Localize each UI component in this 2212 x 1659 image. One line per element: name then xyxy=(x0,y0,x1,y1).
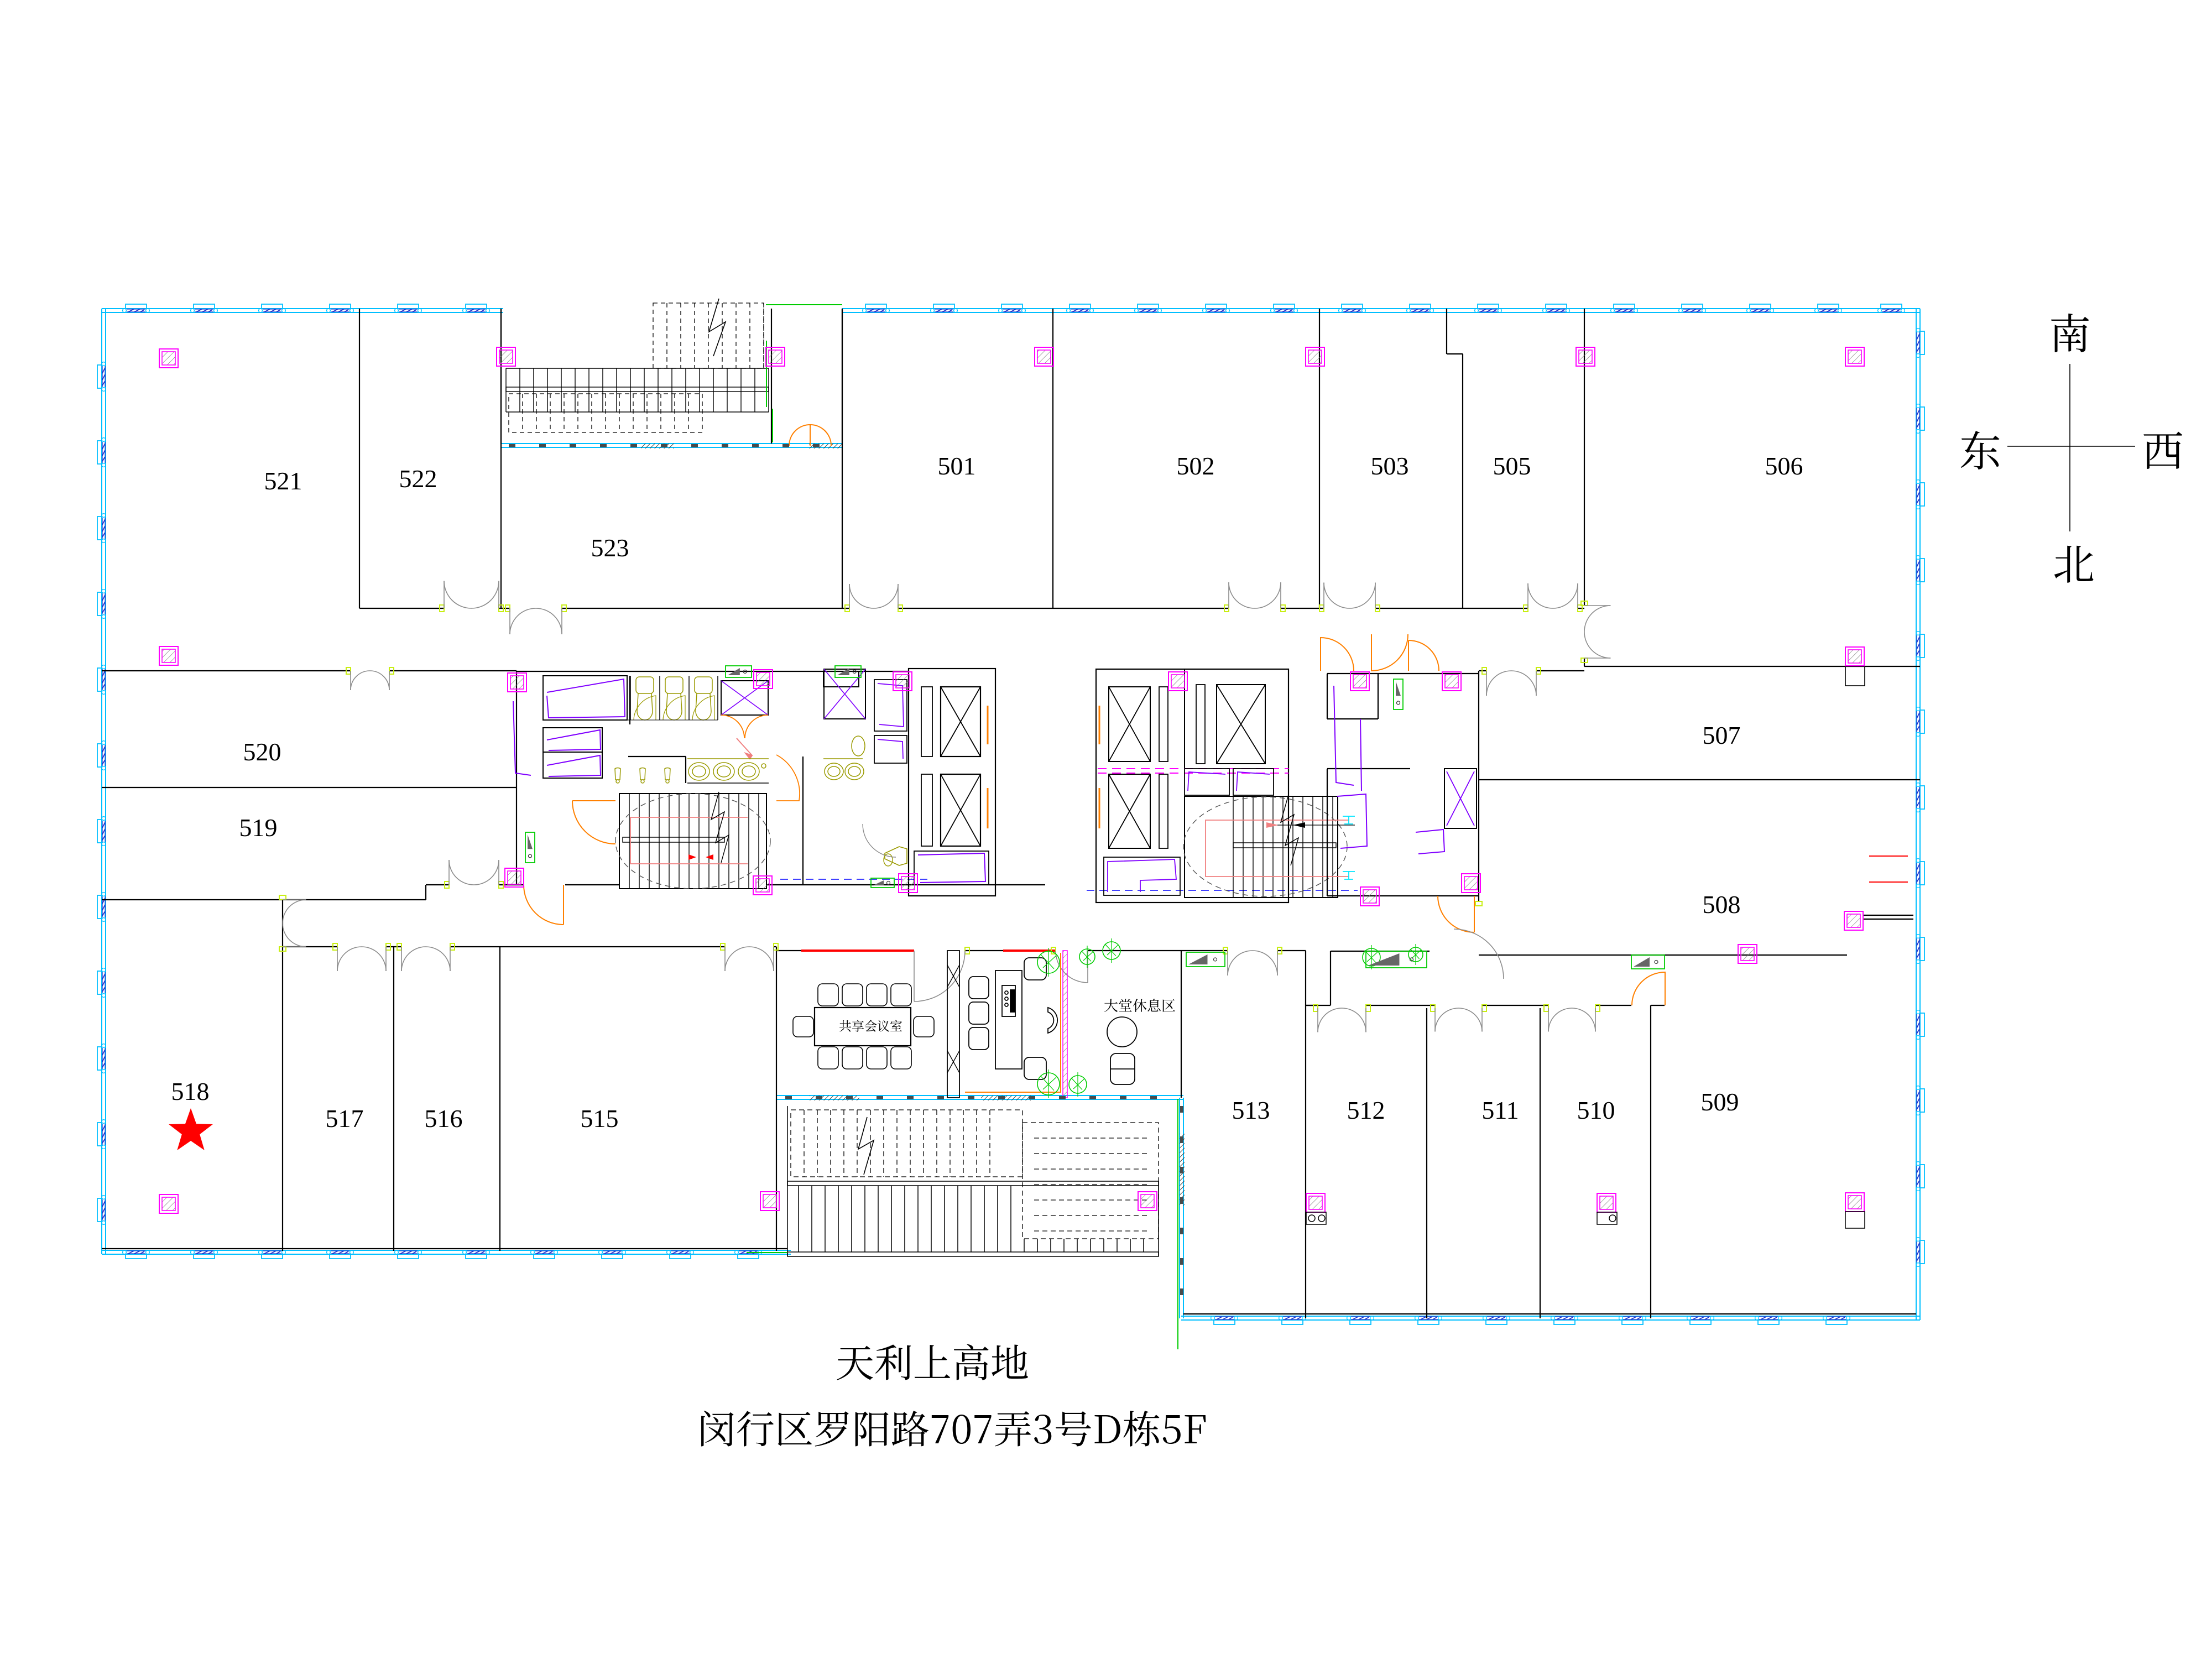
svg-text:505: 505 xyxy=(1493,452,1531,480)
svg-text:521: 521 xyxy=(264,467,302,495)
svg-text:506: 506 xyxy=(1765,452,1803,480)
svg-text:508: 508 xyxy=(1703,890,1741,919)
svg-text:523: 523 xyxy=(591,534,629,562)
svg-text:501: 501 xyxy=(938,452,976,480)
svg-text:503: 503 xyxy=(1371,452,1409,480)
svg-text:520: 520 xyxy=(243,738,281,766)
svg-text:509: 509 xyxy=(1701,1088,1739,1116)
svg-text:519: 519 xyxy=(239,813,278,842)
svg-text:522: 522 xyxy=(399,465,437,493)
svg-text:507: 507 xyxy=(1703,721,1741,749)
svg-text:517: 517 xyxy=(326,1104,364,1133)
svg-text:502: 502 xyxy=(1177,452,1215,480)
svg-text:518: 518 xyxy=(171,1077,210,1105)
svg-text:512: 512 xyxy=(1347,1096,1385,1124)
svg-text:513: 513 xyxy=(1232,1096,1270,1124)
svg-text:511: 511 xyxy=(1481,1096,1519,1124)
svg-text:516: 516 xyxy=(425,1104,463,1133)
svg-text:515: 515 xyxy=(581,1104,619,1133)
svg-text:510: 510 xyxy=(1577,1096,1615,1124)
